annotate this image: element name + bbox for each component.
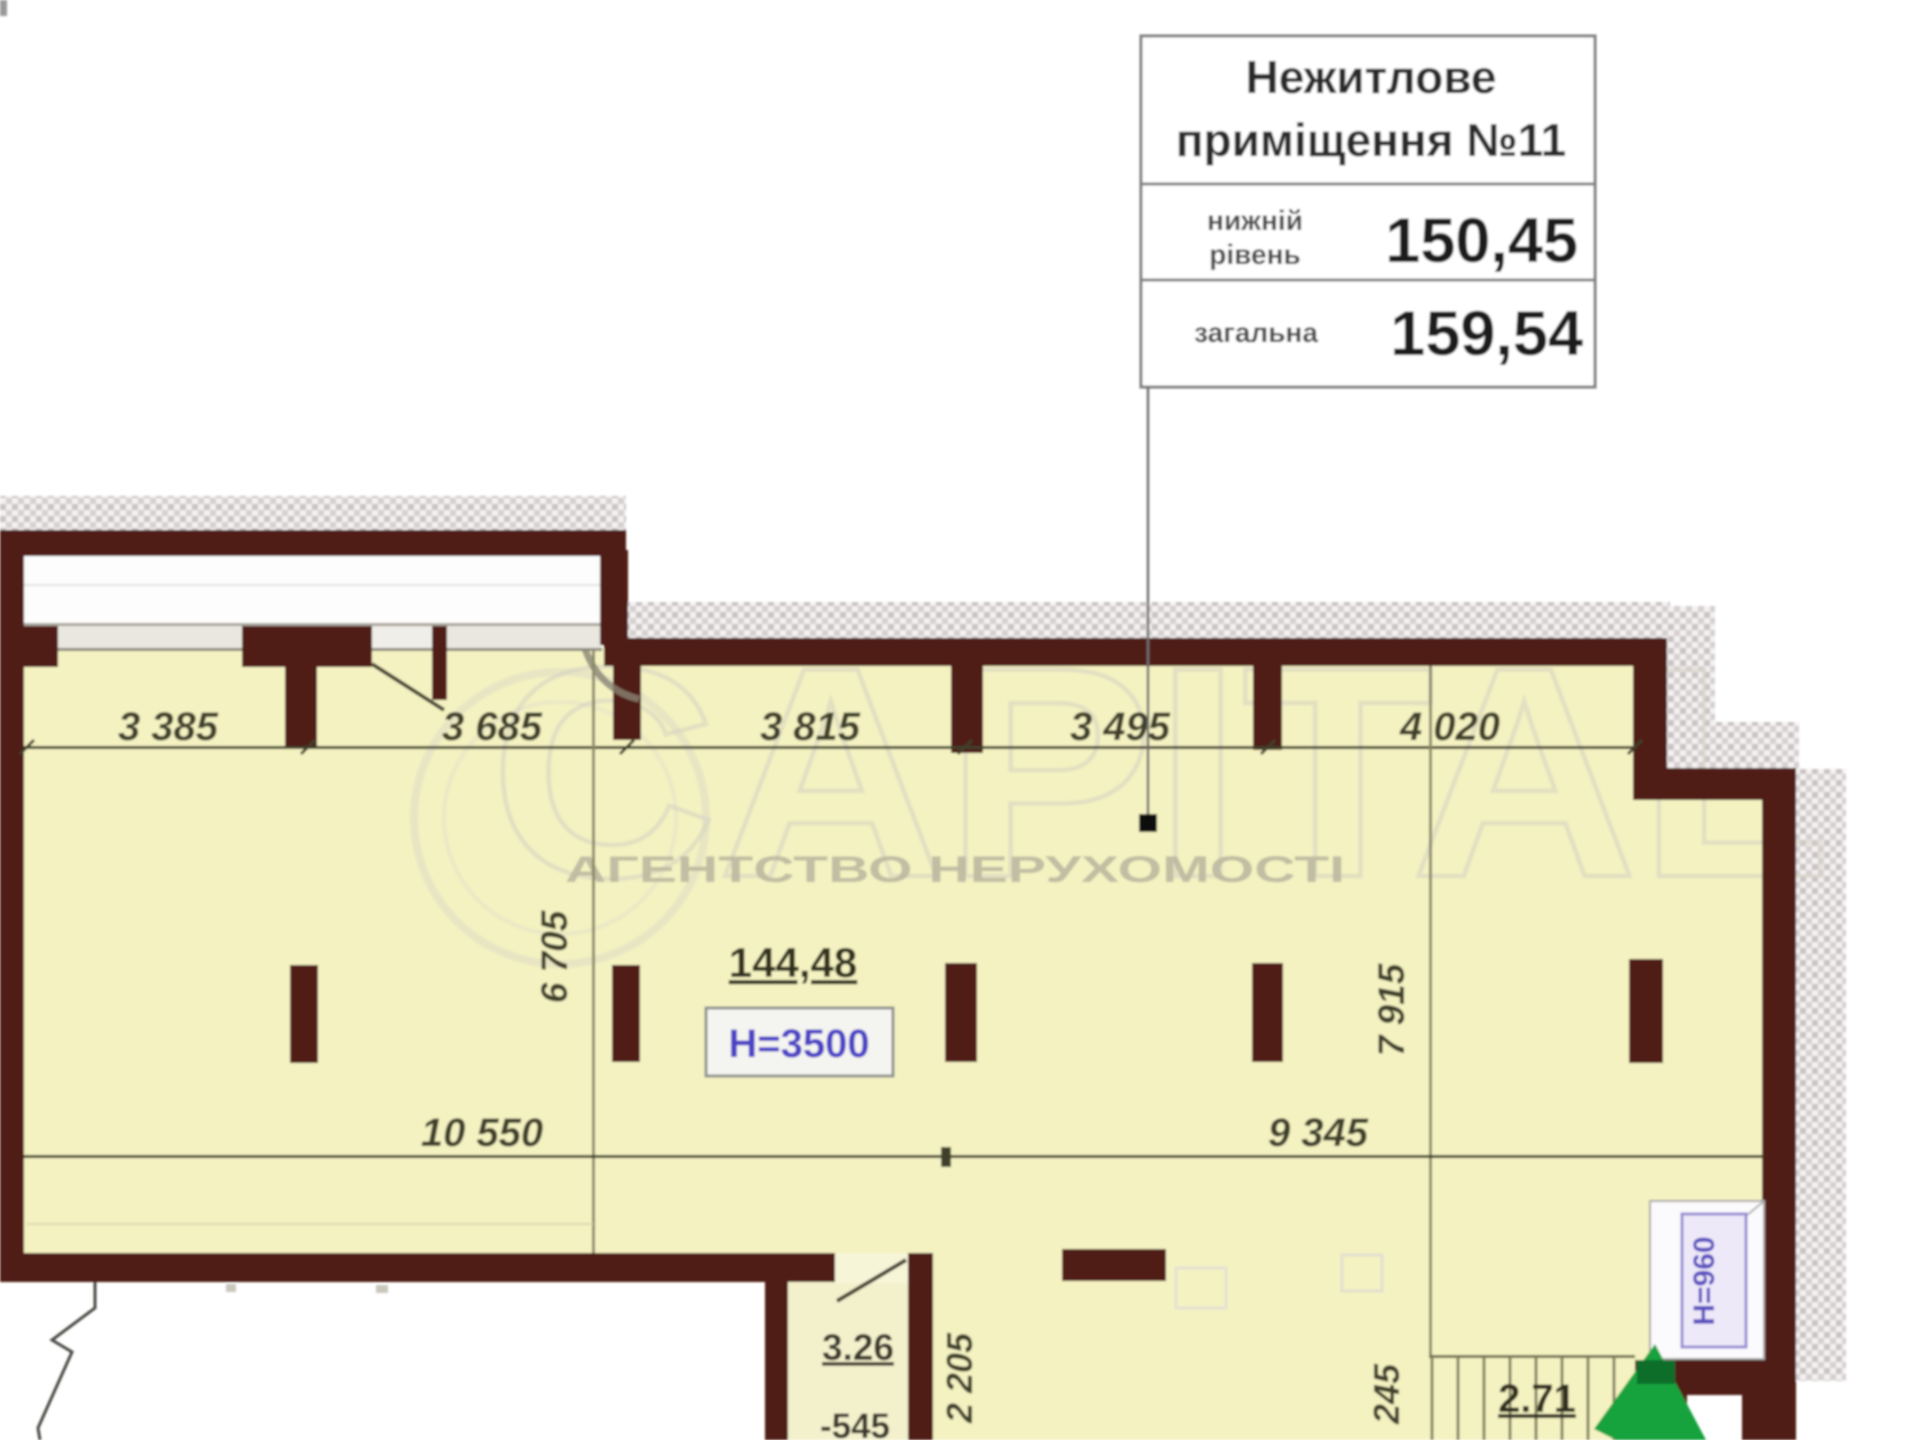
svg-text:3 495: 3 495 xyxy=(1070,705,1171,749)
svg-text:144,48: 144,48 xyxy=(729,939,857,986)
svg-text:159,54: 159,54 xyxy=(1390,299,1583,369)
svg-text:приміщення №11: приміщення №11 xyxy=(1176,114,1566,166)
svg-text:-545: -545 xyxy=(820,1407,890,1440)
svg-text:2 205: 2 205 xyxy=(939,1332,980,1424)
svg-text:4 020: 4 020 xyxy=(1399,705,1500,749)
svg-text:6 705: 6 705 xyxy=(534,909,575,1003)
svg-text:нижній: нижній xyxy=(1207,205,1303,236)
svg-text:2.71: 2.71 xyxy=(1498,1377,1576,1421)
svg-text:рівень: рівень xyxy=(1209,239,1300,270)
svg-text:245: 245 xyxy=(1366,1363,1407,1425)
svg-text:Нежитлове: Нежитлове xyxy=(1246,51,1497,103)
svg-text:3 385: 3 385 xyxy=(118,705,219,749)
svg-text:3.26: 3.26 xyxy=(822,1327,894,1368)
svg-text:H=3500: H=3500 xyxy=(728,1022,869,1066)
svg-text:150,45: 150,45 xyxy=(1385,206,1578,276)
svg-text:3 815: 3 815 xyxy=(760,705,861,749)
svg-text:7 915: 7 915 xyxy=(1371,962,1412,1056)
svg-text:3 685: 3 685 xyxy=(442,705,543,749)
svg-text:АГЕНТСТВО НЕРУХОМОСТІ: АГЕНТСТВО НЕРУХОМОСТІ xyxy=(565,849,1345,890)
svg-text:загальна: загальна xyxy=(1194,317,1318,348)
svg-text:9 345: 9 345 xyxy=(1268,1111,1369,1155)
svg-text:H=960: H=960 xyxy=(1688,1236,1721,1325)
svg-text:10 550: 10 550 xyxy=(421,1111,543,1155)
